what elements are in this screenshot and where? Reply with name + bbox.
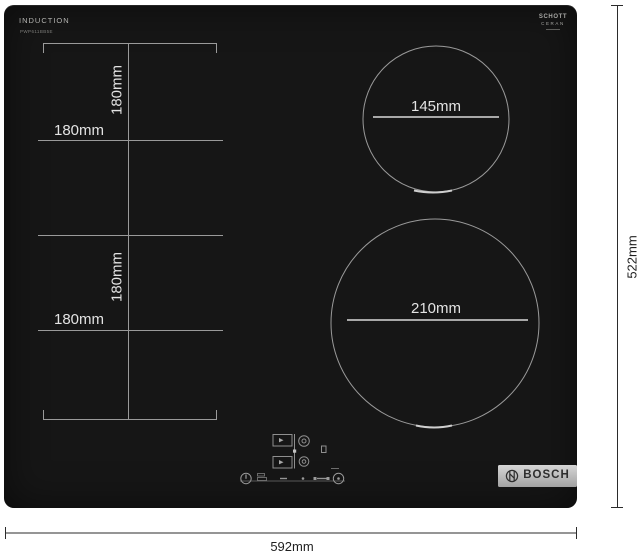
flex-bottom-horizontal-label: 180mm [54, 312, 104, 327]
flex-bottom-vertical-label: 180mm [110, 252, 125, 302]
large-zone-diameter-label: 210mm [411, 301, 461, 316]
hob-dimension-diagram: INDUCTION PWP611BB5E SCHOTT CERAN 180mm … [0, 0, 640, 555]
model-number-text: PWP611BB5E [20, 30, 53, 35]
induction-label: INDUCTION [19, 17, 70, 25]
flex-top-horizontal-label: 180mm [54, 123, 104, 138]
schott-ceran-logo: SCHOTT CERAN [536, 14, 570, 30]
schott-logo-line2: CERAN [536, 21, 570, 26]
schott-fine-print [546, 29, 560, 31]
bosch-logo-text: BOSCH [523, 470, 570, 482]
glass-panel [4, 5, 577, 508]
bosch-logo-badge: BOSCH [498, 465, 577, 487]
bosch-emblem-icon [505, 469, 519, 483]
small-zone-diameter-label: 145mm [411, 99, 461, 114]
overall-width-label: 592mm [270, 540, 313, 553]
schott-logo-line1: SCHOTT [536, 14, 570, 21]
flex-top-vertical-label: 180mm [110, 65, 125, 115]
overall-height-label: 522mm [626, 235, 639, 278]
